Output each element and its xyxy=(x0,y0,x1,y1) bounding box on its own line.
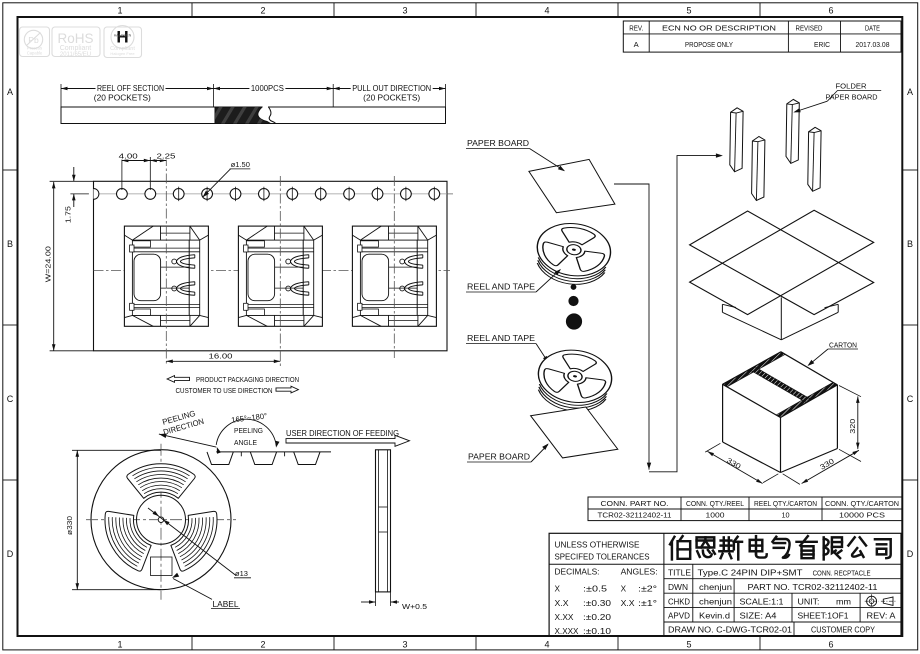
svg-text:REVISED: REVISED xyxy=(796,24,823,33)
svg-text::±2°: :±2° xyxy=(638,585,657,594)
svg-text:chenjun: chenjun xyxy=(699,583,732,592)
svg-text:B: B xyxy=(907,239,913,249)
svg-text:ANGLE: ANGLE xyxy=(234,438,257,447)
svg-text:PART NO. TCR02-32112402-11: PART NO. TCR02-32112402-11 xyxy=(748,582,878,592)
svg-text:X: X xyxy=(555,585,561,594)
svg-text:Type.C 24PIN DIP+SMT: Type.C 24PIN DIP+SMT xyxy=(698,568,803,577)
svg-text:C: C xyxy=(907,394,914,404)
svg-text:ø330: ø330 xyxy=(65,516,74,535)
svg-text:X: X xyxy=(621,585,627,594)
svg-text:REEL QTY./CARTON: REEL QTY./CARTON xyxy=(754,499,817,508)
svg-text:PROPOSE ONLY: PROPOSE ONLY xyxy=(685,40,733,49)
svg-text:C: C xyxy=(7,394,14,404)
svg-text:6: 6 xyxy=(828,5,833,15)
svg-text::±0.20: :±0.20 xyxy=(583,613,612,622)
svg-text:16.00: 16.00 xyxy=(209,352,233,361)
svg-text:Halogen Free: Halogen Free xyxy=(110,51,135,56)
svg-text:X.X: X.X xyxy=(555,599,570,608)
svg-text:3: 3 xyxy=(402,639,407,649)
svg-text::±0.30: :±0.30 xyxy=(583,599,612,608)
svg-text:mm: mm xyxy=(836,596,851,606)
svg-text:USER DIRECTION OF FEEDING: USER DIRECTION OF FEEDING xyxy=(286,429,399,438)
svg-text:PULL OUT DIRECTION: PULL OUT DIRECTION xyxy=(352,84,431,93)
svg-text:(20 POCKETS): (20 POCKETS) xyxy=(94,93,151,102)
svg-text:X.X: X.X xyxy=(621,599,636,608)
svg-text:W=24.00: W=24.00 xyxy=(44,246,53,282)
svg-text:D: D xyxy=(907,549,914,559)
svg-text:REV: A: REV: A xyxy=(867,611,896,621)
svg-text:A: A xyxy=(7,87,13,97)
svg-text:B: B xyxy=(7,239,13,249)
svg-text:W+0.5: W+0.5 xyxy=(402,602,427,611)
svg-text:HALOGEN: HALOGEN xyxy=(114,33,132,37)
svg-text:Pb: Pb xyxy=(28,35,39,45)
svg-text:6: 6 xyxy=(828,639,833,649)
svg-text:10: 10 xyxy=(781,511,789,520)
svg-text:2: 2 xyxy=(260,5,265,15)
svg-text:1: 1 xyxy=(117,5,122,15)
svg-text:4: 4 xyxy=(544,5,549,15)
svg-text:CONN. PART NO.: CONN. PART NO. xyxy=(601,499,669,508)
svg-text:2017.03.08: 2017.03.08 xyxy=(856,40,890,49)
svg-text:PRODUCT PACKAGING DIRECTION: PRODUCT PACKAGING DIRECTION xyxy=(196,375,299,384)
svg-text:DATE: DATE xyxy=(865,24,880,33)
svg-text:2: 2 xyxy=(260,639,265,649)
svg-text:ECN NO OR DESCRIPTION: ECN NO OR DESCRIPTION xyxy=(662,24,776,33)
svg-text:ø13: ø13 xyxy=(235,569,248,578)
svg-text:FOLDER: FOLDER xyxy=(836,82,868,91)
svg-text:A: A xyxy=(907,87,913,97)
svg-text:APVD: APVD xyxy=(668,611,690,621)
svg-text:DWN: DWN xyxy=(668,582,688,592)
svg-text:TITLE: TITLE xyxy=(668,567,691,577)
svg-text:ERIC: ERIC xyxy=(814,40,830,49)
svg-text:D: D xyxy=(7,549,14,559)
svg-text:10000 PCS: 10000 PCS xyxy=(839,511,885,520)
svg-text:(20 POCKETS): (20 POCKETS) xyxy=(363,93,420,102)
svg-text:ø1.50: ø1.50 xyxy=(231,160,250,169)
svg-text:CONN. RECPTACLE: CONN. RECPTACLE xyxy=(813,568,871,577)
svg-text:5: 5 xyxy=(686,5,691,15)
svg-text:DECIMALS:: DECIMALS: xyxy=(555,567,600,576)
svg-text:CONN. QTY./REEL: CONN. QTY./REEL xyxy=(686,499,744,508)
svg-text:PAPER BOARD: PAPER BOARD xyxy=(468,453,530,462)
svg-text:LABEL: LABEL xyxy=(213,600,240,609)
svg-text:1000PCS: 1000PCS xyxy=(251,84,284,93)
svg-text:3: 3 xyxy=(402,5,407,15)
svg-text:PAPER BOARD: PAPER BOARD xyxy=(826,92,879,101)
svg-text:CHKD: CHKD xyxy=(668,596,690,606)
svg-text:DRAW NO. C-DWG-TCR02-01: DRAW NO. C-DWG-TCR02-01 xyxy=(668,625,792,635)
svg-text:PEELING: PEELING xyxy=(234,426,263,435)
svg-text:REEL AND TAPE: REEL AND TAPE xyxy=(467,283,535,292)
svg-text:CARTON: CARTON xyxy=(829,340,857,349)
svg-text:ANGLES:: ANGLES: xyxy=(621,567,658,576)
svg-text:SCALE:1:1: SCALE:1:1 xyxy=(740,596,784,606)
svg-text:REEL OFF SECTION: REEL OFF SECTION xyxy=(97,84,164,93)
svg-text:1: 1 xyxy=(117,639,122,649)
svg-text:320: 320 xyxy=(848,419,857,434)
svg-text:PAPER BOARD: PAPER BOARD xyxy=(467,139,529,148)
svg-text:SHEET:1OF1: SHEET:1OF1 xyxy=(798,611,849,621)
svg-text:Kevin.d: Kevin.d xyxy=(699,612,730,621)
svg-text::±0.10: :±0.10 xyxy=(583,627,612,636)
svg-text:SIZE: A4: SIZE: A4 xyxy=(740,611,777,621)
svg-text:CONN. QTY./CARTON: CONN. QTY./CARTON xyxy=(825,499,899,508)
svg-text:4: 4 xyxy=(544,639,549,649)
svg-text:REV.: REV. xyxy=(629,24,643,33)
svg-text:Compliant: Compliant xyxy=(60,45,92,52)
svg-text:1.75: 1.75 xyxy=(64,206,73,223)
svg-text:5: 5 xyxy=(686,639,691,649)
svg-text:RoHS: RoHS xyxy=(57,31,93,46)
svg-text:1000: 1000 xyxy=(706,511,725,520)
svg-text:2011/65/EU: 2011/65/EU xyxy=(60,52,91,58)
svg-text:UNLESS OTHERWISE: UNLESS OTHERWISE xyxy=(555,539,640,549)
svg-text:SPECIFED TOLERANCES: SPECIFED TOLERANCES xyxy=(555,551,650,561)
svg-text::±1°: :±1° xyxy=(638,599,657,608)
svg-text:CUSTOMER COPY: CUSTOMER COPY xyxy=(811,625,875,635)
svg-text:CUSTOMER TO USE DIRECTION: CUSTOMER TO USE DIRECTION xyxy=(176,386,273,395)
svg-text:2.25: 2.25 xyxy=(157,151,176,160)
svg-text:Capable: Capable xyxy=(27,50,43,55)
svg-text:TCR02-32112402-11: TCR02-32112402-11 xyxy=(598,511,672,520)
svg-text::±0.5: :±0.5 xyxy=(583,585,608,594)
svg-text:chenjun: chenjun xyxy=(699,597,732,606)
svg-text:X.XX: X.XX xyxy=(555,613,575,622)
svg-text:4.00: 4.00 xyxy=(119,151,138,160)
svg-text:REEL AND TAPE: REEL AND TAPE xyxy=(467,334,535,343)
svg-text:UNIT:: UNIT: xyxy=(798,596,820,606)
svg-text:X.XXX: X.XXX xyxy=(555,627,580,636)
